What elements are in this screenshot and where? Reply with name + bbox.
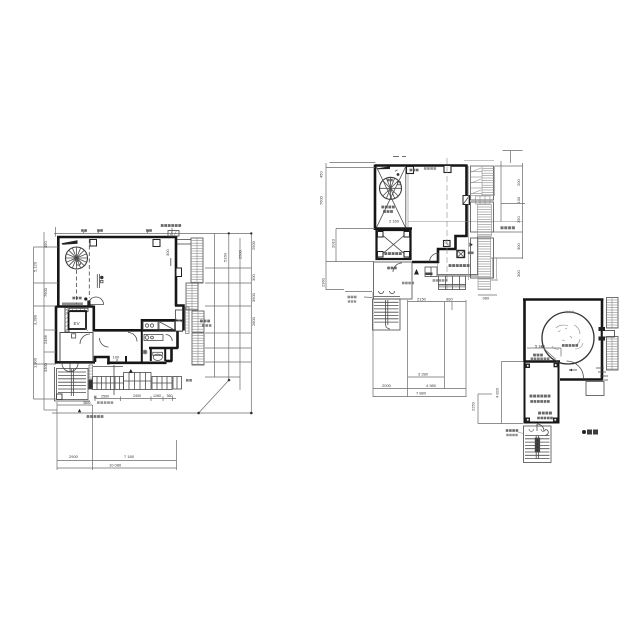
svg-text:2500: 2500	[251, 240, 256, 250]
svg-text:300: 300	[165, 249, 170, 256]
svg-text:1,800: 1,800	[33, 357, 38, 368]
svg-text:350: 350	[516, 216, 521, 223]
svg-text:2900: 2900	[69, 454, 79, 459]
svg-text:3300: 3300	[43, 362, 48, 372]
svg-text:7600: 7600	[319, 195, 324, 205]
svg-text:1260: 1260	[153, 394, 161, 398]
svg-text:4 980: 4 980	[426, 383, 437, 388]
svg-text:2500: 2500	[238, 249, 243, 259]
svg-text:360: 360	[167, 394, 173, 398]
svg-text:300: 300	[516, 243, 521, 250]
svg-text:3840: 3840	[83, 401, 91, 405]
svg-text:5160: 5160	[223, 252, 228, 262]
svg-text:100: 100	[113, 355, 120, 360]
svg-text:200: 200	[516, 179, 521, 186]
svg-text:2500: 2500	[101, 394, 109, 398]
svg-text:2000: 2000	[382, 383, 392, 388]
svg-text:450: 450	[43, 241, 48, 248]
svg-text:10 080: 10 080	[109, 463, 122, 468]
svg-text:2400: 2400	[133, 394, 141, 398]
svg-text:2250: 2250	[471, 401, 476, 411]
svg-text:2800: 2800	[251, 316, 256, 326]
svg-text:3 280: 3 280	[418, 372, 429, 377]
svg-text:7 880: 7 880	[416, 391, 427, 396]
svg-text:3,280: 3,280	[33, 314, 38, 325]
svg-text:960: 960	[446, 297, 453, 302]
svg-text:2360: 2360	[321, 277, 326, 287]
svg-text:5,120: 5,120	[33, 261, 38, 272]
svg-text:300: 300	[516, 270, 521, 277]
svg-text:300: 300	[251, 274, 256, 281]
svg-text:100: 100	[516, 196, 521, 203]
svg-text:2010: 2010	[331, 238, 336, 248]
svg-text:2 160: 2 160	[389, 219, 400, 224]
svg-text:4 820: 4 820	[495, 387, 500, 398]
svg-text:5 160: 5 160	[535, 344, 546, 349]
svg-text:450: 450	[319, 171, 324, 178]
svg-text:EV: EV	[74, 321, 81, 326]
svg-text:2456: 2456	[43, 334, 48, 344]
svg-text:960: 960	[483, 296, 490, 301]
svg-text:2150: 2150	[417, 297, 427, 302]
svg-text:7600: 7600	[43, 287, 48, 297]
svg-text:3500: 3500	[251, 292, 256, 302]
svg-text:7 180: 7 180	[124, 454, 135, 459]
